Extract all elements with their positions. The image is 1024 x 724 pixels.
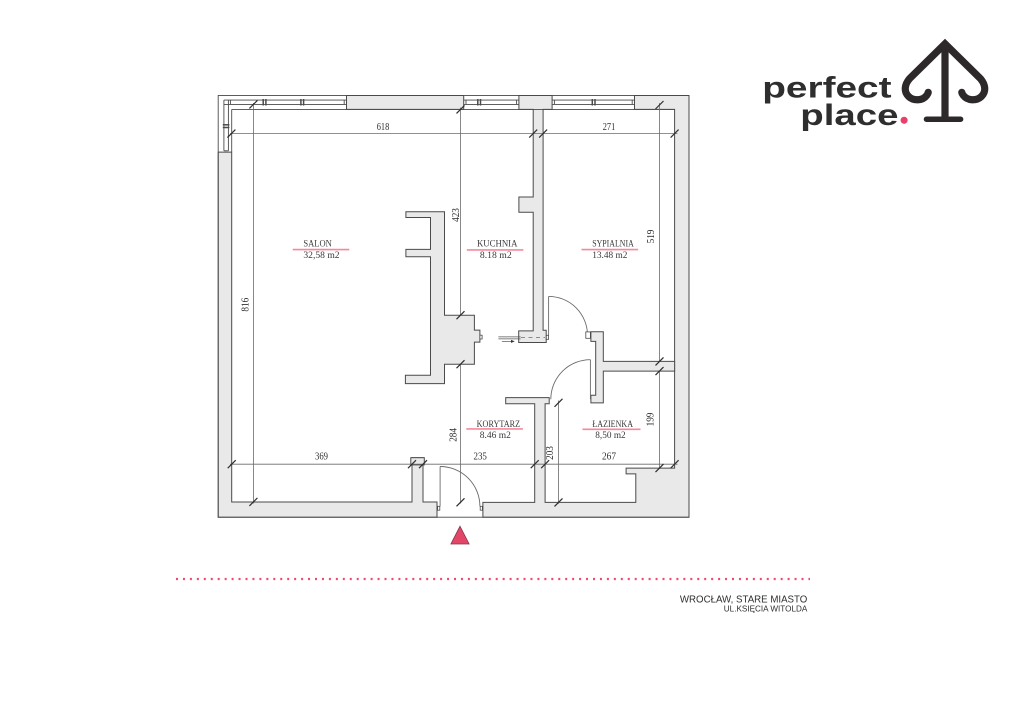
svg-text:SYPIALNIA: SYPIALNIA <box>592 239 634 249</box>
svg-text:271: 271 <box>603 122 616 133</box>
svg-text:199: 199 <box>645 413 656 427</box>
svg-text:ŁAZIENKA: ŁAZIENKA <box>592 420 633 430</box>
svg-text:816: 816 <box>241 298 252 312</box>
svg-text:8,50 m2: 8,50 m2 <box>595 431 626 441</box>
svg-text:place: place <box>800 99 898 132</box>
svg-text:618: 618 <box>377 122 390 133</box>
svg-text:32,58 m2: 32,58 m2 <box>303 251 339 261</box>
svg-text:235: 235 <box>474 451 487 462</box>
svg-text:UL.KSIĘCIA WITOLDA: UL.KSIĘCIA WITOLDA <box>724 603 808 613</box>
svg-text:267: 267 <box>602 451 616 462</box>
svg-text:284: 284 <box>448 428 459 442</box>
svg-text:13.48 m2: 13.48 m2 <box>592 251 627 261</box>
svg-text:KUCHNIA: KUCHNIA <box>477 239 518 249</box>
svg-text:SALON: SALON <box>303 239 332 249</box>
svg-text:423: 423 <box>451 208 462 222</box>
svg-text:203: 203 <box>545 446 556 460</box>
svg-text:8.46 m2: 8.46 m2 <box>480 431 511 441</box>
svg-text:519: 519 <box>646 230 657 244</box>
svg-text:369: 369 <box>315 452 328 463</box>
svg-text:8.18 m2: 8.18 m2 <box>480 251 512 261</box>
